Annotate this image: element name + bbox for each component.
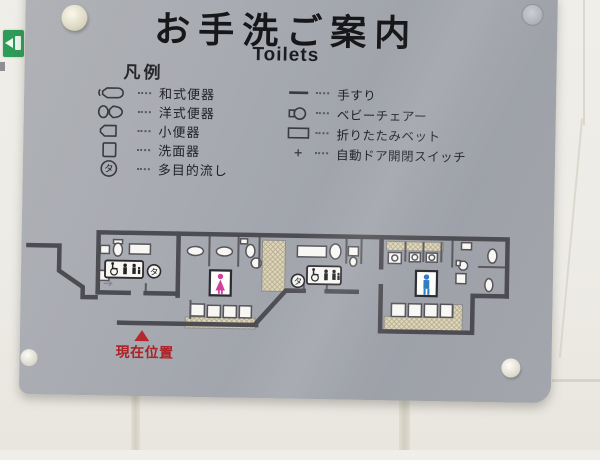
legend-dots [137, 129, 150, 131]
exit-door-icon [15, 36, 21, 50]
toilet-guide-sign-plate: お手洗ご案内 Toilets 凡例 和式便器 洋式便器 [19, 0, 558, 403]
auto-door-switch-icon [285, 144, 311, 162]
multipurpose-sink-symbol-left: タ [147, 265, 160, 278]
walls [27, 231, 508, 333]
tile-grout-line [583, 0, 585, 125]
legend-item-urinal: 小便器 [95, 120, 228, 141]
legend-dots [137, 148, 150, 150]
man-figure-icon [423, 274, 429, 295]
mount-screw-bottom-right [501, 358, 520, 377]
legend-label: 和式便器 [159, 83, 215, 103]
urinal-icon [95, 121, 133, 140]
tile-grout-line [559, 118, 583, 357]
squat-toilet-icon [96, 83, 134, 102]
legend-item-squat-toilet: 和式便器 [96, 82, 229, 103]
mount-screw-bottom-left [20, 349, 37, 366]
folding-bed-icon [285, 124, 311, 142]
legend-heading: 凡例 [123, 58, 163, 84]
current-location-triangle-icon [134, 330, 149, 341]
legend-label: 小便器 [158, 121, 200, 141]
wall-mark [0, 62, 5, 71]
exit-arrow-icon [5, 38, 13, 48]
current-location-marker: 現在位置 [115, 330, 174, 361]
exit-sign-reflection [3, 30, 24, 57]
adult-figure-icon [123, 263, 127, 274]
legend-label: 折りたたみベット [336, 124, 440, 145]
multipurpose-sink-icon: タ [95, 159, 133, 178]
accessible-toilet-sign-left [105, 260, 143, 278]
legend-item-multipurpose-sink: タ 多目的流し [95, 158, 228, 179]
legend-item-western-toilet: 洋式便器 [96, 101, 229, 122]
door-direction-arrow-icon [104, 281, 112, 286]
legend-dots [138, 91, 151, 93]
legend-item-auto-door-switch: 自動ドア開閉スイッチ [285, 143, 466, 166]
adult-child-figure-icon [332, 270, 340, 280]
handrail-icon [286, 84, 312, 102]
legend-left-column: 和式便器 洋式便器 小便器 洗面器 [95, 82, 230, 179]
hatched-areas [185, 238, 464, 333]
legend-right-column: 手すり ベビーチェアー 折りたたみベット 自動ドア開閉スイッチ [285, 83, 467, 166]
wheelchair-icon [111, 262, 118, 275]
legend-item-washbasin: 洗面器 [95, 139, 228, 160]
washbasin-icon [95, 140, 133, 159]
adult-child-figure-icon [132, 264, 140, 274]
wheelchair-icon [311, 268, 318, 281]
floor-plan: タ タ [0, 0, 600, 460]
svg-text:タ: タ [150, 267, 159, 277]
legend-dots [137, 167, 150, 169]
legend-label: 洋式便器 [159, 102, 215, 122]
legend-dots [316, 92, 329, 94]
legend-label: 自動ドア開閉スイッチ [336, 144, 466, 165]
legend-dots [138, 110, 151, 112]
women-toilet-sign [210, 270, 231, 295]
accessible-toilet-sign-middle [307, 266, 341, 285]
woman-figure-icon [215, 274, 225, 294]
mount-screw-top-left [61, 5, 87, 31]
men-toilet-sign [416, 271, 437, 296]
legend-label: 洗面器 [158, 140, 200, 160]
legend-label: 多目的流し [158, 159, 228, 179]
legend-dots [315, 152, 328, 154]
stall-partitions [145, 233, 507, 324]
adult-figure-icon [324, 269, 328, 280]
tile-grout-line [552, 379, 600, 382]
tile-grout-line [399, 397, 410, 450]
legend-dots [316, 112, 329, 114]
legend-label: 手すり [337, 84, 376, 104]
tile-grout-line [131, 394, 140, 450]
mount-screw-top-right [521, 4, 543, 26]
multipurpose-sink-symbol-middle: タ [291, 274, 304, 287]
current-location-label: 現在位置 [115, 344, 173, 361]
svg-text:タ: タ [294, 276, 303, 286]
legend-dots [315, 132, 328, 134]
legend-label: ベビーチェアー [337, 104, 428, 125]
baby-chair-icon [286, 104, 312, 122]
svg-text:タ: タ [104, 163, 114, 174]
western-toilet-icon [96, 102, 134, 121]
fixtures [98, 236, 497, 322]
